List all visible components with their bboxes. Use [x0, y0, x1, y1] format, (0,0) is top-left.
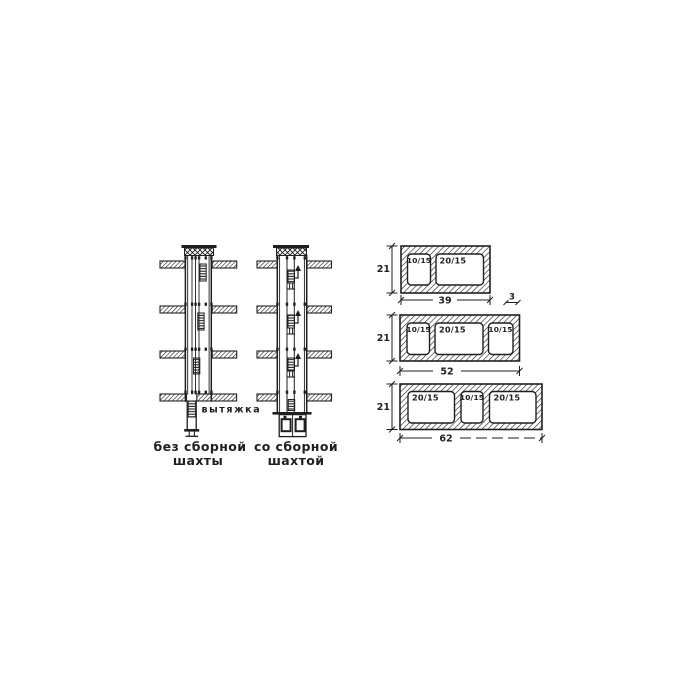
caption-with-shaft-line2: шахтой [268, 453, 325, 468]
dim-width [397, 433, 545, 443]
dim-height-label: 21 [377, 264, 390, 275]
flues-without-collector-diagram: вытяжка без сборной шахты [154, 245, 262, 468]
caption-without-shaft-line2: шахты [173, 453, 223, 468]
floor-slabs [160, 261, 237, 401]
opening-label: 20/15 [494, 393, 521, 403]
block-section-62: 20/15 10/15 20/15 21 62 [377, 381, 545, 445]
up-arrow-icon [295, 265, 301, 271]
block-section-52: 10/15 20/15 10/15 21 52 [377, 312, 523, 378]
caption-without-shaft-line1: без сборной [154, 439, 247, 454]
opening-label: 20/15 [412, 393, 439, 403]
collector-shaft-diagram: со сборной шахтой [254, 245, 338, 468]
dim-height-label: 21 [377, 402, 390, 413]
opening-label: 20/15 [439, 325, 466, 335]
opening-label: 10/15 [460, 393, 484, 402]
dim-width-label: 52 [440, 367, 453, 378]
opening-label: 10/15 [407, 256, 431, 265]
up-arrow-icon [295, 353, 301, 359]
dim-width-label: 62 [439, 434, 452, 445]
dim-width-label: 39 [438, 296, 451, 307]
opening-label: 20/15 [440, 256, 467, 266]
opening-label: 10/15 [488, 325, 512, 334]
exhaust-label: вытяжка [202, 405, 262, 416]
up-arrow-icon [295, 310, 301, 316]
caption-with-shaft-line1: со сборной [254, 439, 338, 454]
dim-wall-thickness: 3 [504, 293, 521, 306]
block-section-39: 10/15 20/15 21 39 3 [377, 243, 521, 307]
shaft-cap [185, 248, 214, 256]
dim-height-label: 21 [377, 333, 390, 344]
opening-label: 10/15 [406, 325, 430, 334]
ventilation-diagram: вытяжка без сборной шахты [0, 0, 700, 700]
shaft-base-grille [288, 400, 295, 411]
shaft-cap [277, 248, 307, 256]
dim-wall-thickness-label: 3 [509, 293, 515, 303]
dim-width [397, 366, 523, 376]
scanned-figure: вытяжка без сборной шахты [0, 0, 700, 700]
collector-base-block [273, 412, 312, 437]
